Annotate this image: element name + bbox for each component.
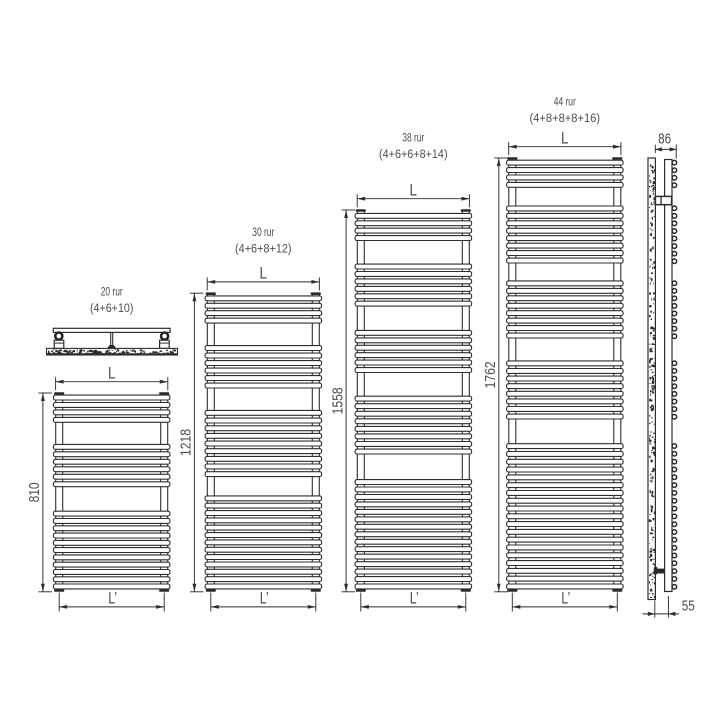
svg-text:55: 55 <box>682 597 695 614</box>
svg-text:(4+6+8+12): (4+6+8+12) <box>235 243 292 255</box>
svg-text:(4+8+8+8+16): (4+8+8+8+16) <box>530 113 601 125</box>
svg-text:L: L <box>410 182 418 200</box>
svg-text:30 rur: 30 rur <box>252 227 274 239</box>
svg-text:1762: 1762 <box>482 361 499 388</box>
svg-text:L: L <box>108 365 116 383</box>
svg-text:86: 86 <box>658 130 671 147</box>
svg-text:L’: L’ <box>108 589 117 607</box>
svg-text:44 rur: 44 rur <box>554 97 576 109</box>
svg-text:38 rur: 38 rur <box>402 133 424 145</box>
svg-text:L: L <box>561 130 569 148</box>
svg-text:(4+6+10): (4+6+10) <box>90 303 134 315</box>
svg-text:20 rur: 20 rur <box>101 287 123 299</box>
svg-text:1558: 1558 <box>329 387 346 414</box>
svg-text:810: 810 <box>26 482 43 502</box>
svg-text:L’: L’ <box>260 589 269 607</box>
svg-text:L: L <box>260 265 268 283</box>
svg-text:L’: L’ <box>561 589 570 607</box>
svg-text:(4+6+6+8+14): (4+6+6+8+14) <box>379 149 448 161</box>
svg-text:L’: L’ <box>410 589 419 607</box>
svg-text:1218: 1218 <box>178 429 195 456</box>
